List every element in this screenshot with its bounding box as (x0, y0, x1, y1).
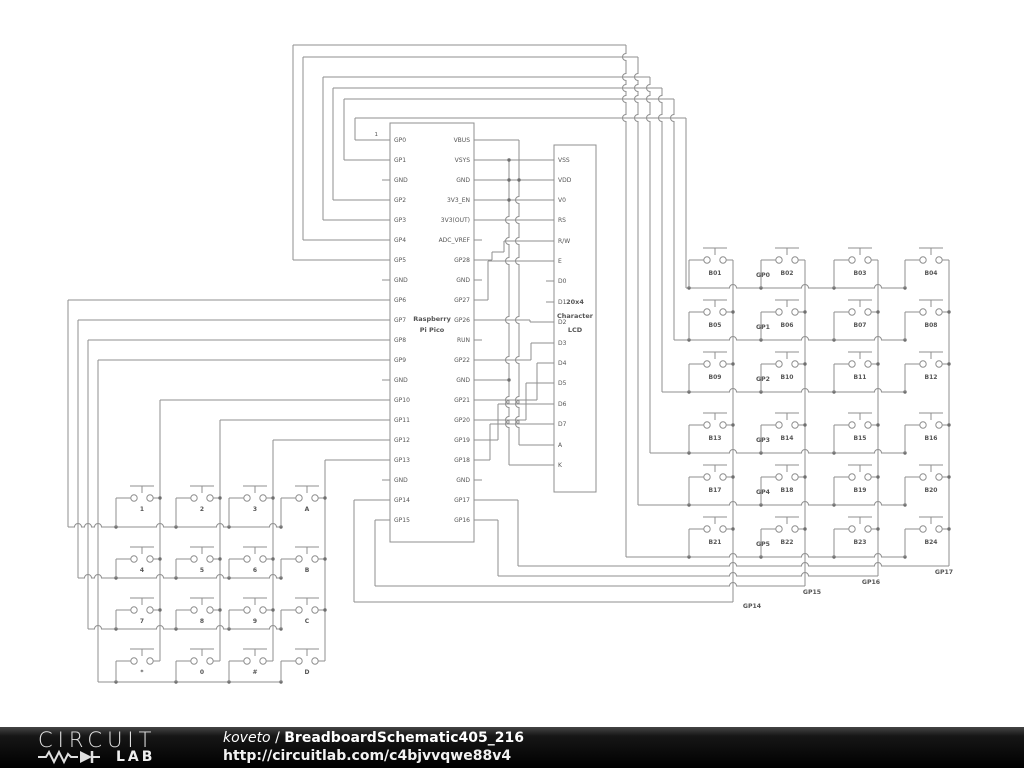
lcd-pin-label: D5 (558, 380, 567, 387)
button-contact (936, 257, 942, 263)
button-contact (936, 309, 942, 315)
junction-dot (507, 378, 510, 381)
resistor-diode-icon (38, 749, 114, 765)
lcd-name: LCD (568, 326, 583, 334)
button-contact (936, 361, 942, 367)
button-contact (704, 361, 710, 367)
button-contact (776, 361, 782, 367)
junction-dot (218, 608, 221, 611)
matrix-button-label: B01 (709, 270, 722, 277)
pico-left-pin-label: GP1 (394, 157, 406, 164)
matrix-row-label: GP1 (756, 324, 770, 331)
matrix-row-label: GP2 (756, 376, 770, 383)
schematic-credit-line: koveto / BreadboardSchematic405_216 (223, 730, 524, 748)
button-contact (936, 474, 942, 480)
matrix-button-label: B17 (709, 487, 722, 494)
keypad-button-label: 4 (140, 567, 144, 574)
keypad-button-label: C (305, 618, 310, 625)
button-contact (792, 474, 798, 480)
button-contact (312, 607, 318, 613)
keypad-button-label: A (305, 506, 310, 513)
matrix-bottom-label: GP14 (743, 603, 762, 610)
wire (635, 57, 639, 505)
button-contact (296, 556, 302, 562)
matrix-bottom-label: GP17 (935, 569, 953, 576)
button-contact (720, 361, 726, 367)
keypad-button-label: 3 (253, 506, 257, 513)
junction-dot (731, 310, 734, 313)
pico-right-pin-label: 3V3_EN (447, 197, 470, 204)
junction-dot (947, 475, 950, 478)
pico-right-pin-label: GP27 (454, 297, 470, 304)
button-contact (776, 474, 782, 480)
pico-right-pin-label: GP22 (454, 357, 470, 364)
junction-dot (158, 608, 161, 611)
credit-separator: / (271, 730, 285, 746)
button-contact (849, 526, 855, 532)
button-contact (244, 495, 250, 501)
button-contact (936, 422, 942, 428)
matrix-button-label: B02 (781, 270, 794, 277)
logo-text-circuit: CIRCUIT (38, 730, 223, 751)
button-contact (704, 309, 710, 315)
pico-left-pin-label: GND (394, 477, 408, 484)
footer-credits: koveto / BreadboardSchematic405_216 http… (223, 730, 524, 765)
pico-left-pin-label: GP14 (394, 497, 410, 504)
pico-right-pin-label: VBUS (454, 137, 471, 144)
junction-dot (803, 475, 806, 478)
matrix-button-label: B14 (781, 435, 794, 442)
matrix-row-label: GP5 (756, 541, 770, 548)
button-contact (312, 556, 318, 562)
button-contact (147, 495, 153, 501)
keypad-button-label: 9 (253, 618, 257, 625)
button-contact (704, 474, 710, 480)
wire (498, 573, 878, 576)
button-contact (865, 474, 871, 480)
junction-dot (731, 475, 734, 478)
matrix-row-label: GP0 (756, 272, 771, 279)
schematic-title: BreadboardSchematic405_216 (284, 730, 524, 746)
matrix-button-label: B21 (709, 539, 722, 546)
matrix-button-label: B23 (854, 539, 867, 546)
pico-left-pin-label: GND (394, 277, 408, 284)
keypad-button-label: 7 (140, 618, 144, 625)
junction-dot (218, 496, 221, 499)
button-contact (865, 526, 871, 532)
pico-left-pin-label: GP10 (394, 397, 410, 404)
button-contact (207, 607, 213, 613)
lcd-name: Character (557, 312, 594, 320)
matrix-button-label: B19 (854, 487, 867, 494)
button-contact (260, 556, 266, 562)
matrix-button-label: B24 (925, 539, 938, 546)
button-contact (849, 257, 855, 263)
button-contact (920, 526, 926, 532)
pico-left-pin-label: GP0 (394, 137, 406, 144)
button-contact (207, 556, 213, 562)
keypad-button-label: B (305, 567, 310, 574)
matrix-row-wire (638, 502, 905, 505)
lcd-pin-label: D3 (558, 340, 567, 347)
button-contact (849, 361, 855, 367)
junction-dot (876, 527, 879, 530)
matrix-button-label: B03 (854, 270, 867, 277)
junction-dot (517, 178, 520, 181)
pico-right-pin-label: GP17 (454, 497, 470, 504)
button-contact (147, 607, 153, 613)
lcd-pin-label: D4 (558, 360, 567, 367)
button-contact (720, 526, 726, 532)
pico-right-pin-label: GP26 (454, 317, 470, 324)
pico-left-pin-label: GP13 (394, 457, 410, 464)
pico-right-pin-label: GND (456, 177, 470, 184)
pico-left-pin-label: GP11 (394, 417, 410, 424)
matrix-button-label: B20 (925, 487, 938, 494)
matrix-button-label: B16 (925, 435, 938, 442)
wire (659, 88, 662, 392)
button-contact (260, 495, 266, 501)
button-contact (865, 361, 871, 367)
button-contact (920, 474, 926, 480)
pico-left-pin-label: GP4 (394, 237, 406, 244)
circuitlab-logo: CIRCUIT LAB (0, 730, 223, 765)
power-bus (516, 140, 520, 445)
pico-left-pin-label: GP12 (394, 437, 410, 444)
ground-bus (506, 160, 510, 465)
matrix-button-label: B09 (709, 374, 722, 381)
button-contact (296, 495, 302, 501)
author-name: koveto (223, 730, 271, 746)
button-contact (776, 257, 782, 263)
keypad-button-label: 0 (200, 669, 204, 676)
keypad-button-label: 1 (140, 506, 144, 513)
button-contact (244, 607, 250, 613)
lcd-pin-label: VDD (558, 177, 572, 184)
matrix-button-label: B13 (709, 435, 722, 442)
button-contact (312, 495, 318, 501)
schematic-url: http://circuitlab.com/c4bjvvqwe88v4 (223, 748, 524, 766)
matrix-button-label: B06 (781, 322, 794, 329)
keypad-button-label: # (252, 669, 257, 676)
junction-dot (876, 362, 879, 365)
button-contact (704, 257, 710, 263)
matrix-button-label: B05 (709, 322, 722, 329)
junction-dot (507, 158, 510, 161)
button-contact (720, 257, 726, 263)
button-contact (260, 607, 266, 613)
junction-dot (158, 496, 161, 499)
junction-dot (876, 423, 879, 426)
button-contact (865, 309, 871, 315)
pico-right-pin-label: GP21 (454, 397, 470, 404)
pico-left-pin-label: GP7 (394, 317, 406, 324)
button-contact (792, 422, 798, 428)
button-contact (191, 607, 197, 613)
matrix-row-label: GP4 (756, 489, 771, 496)
pico-pin1-marker: 1 (375, 132, 379, 138)
keypad-button-label: * (140, 669, 144, 676)
schematic-canvas: GP0GP1GNDGP2GP3GP4GP5GNDGP6GP7GP8GP9GNDG… (0, 0, 1024, 727)
pico-right-pin-label: GND (456, 477, 470, 484)
button-contact (792, 361, 798, 367)
matrix-button-label: B08 (925, 322, 938, 329)
junction-dot (876, 310, 879, 313)
matrix-bottom-label: GP15 (803, 589, 821, 596)
button-contact (704, 526, 710, 532)
button-contact (191, 495, 197, 501)
button-contact (920, 309, 926, 315)
lcd-pin-label: RS (558, 217, 566, 224)
button-contact (792, 526, 798, 532)
button-contact (296, 658, 302, 664)
pico-right-pin-label: RUN (457, 337, 470, 344)
button-contact (776, 422, 782, 428)
matrix-row-wire (662, 389, 905, 392)
keypad-button-label: 5 (200, 567, 204, 574)
pico-left-pin-label: GP15 (394, 517, 410, 524)
matrix-button-label: B11 (854, 374, 867, 381)
pico-left-pin-label: GND (394, 177, 408, 184)
matrix-row-wire (626, 554, 905, 557)
keypad-row-wire (78, 575, 281, 578)
wire (671, 99, 674, 340)
button-contact (920, 257, 926, 263)
wire (647, 77, 651, 453)
junction-dot (731, 527, 734, 530)
pico-right-pin-label: GP16 (454, 517, 470, 524)
keypad-button-label: 2 (200, 506, 204, 513)
matrix-button-label: B12 (925, 374, 938, 381)
button-contact (776, 309, 782, 315)
wire (623, 45, 627, 557)
keypad-button-label: 6 (253, 567, 257, 574)
pico-left-pin-label: GP9 (394, 357, 406, 364)
junction-dot (323, 557, 326, 560)
button-contact (131, 495, 137, 501)
button-contact (792, 257, 798, 263)
junction-dot (803, 362, 806, 365)
button-contact (920, 422, 926, 428)
button-contact (776, 526, 782, 532)
button-contact (147, 556, 153, 562)
button-contact (191, 658, 197, 664)
junction-dot (947, 423, 950, 426)
lcd-name: 20x4 (566, 298, 584, 306)
button-contact (849, 422, 855, 428)
pico-name: Raspberry (413, 315, 451, 323)
junction-dot (507, 178, 510, 181)
pico-right-pin-label: GP20 (454, 417, 470, 424)
footer-bar: CIRCUIT LAB koveto / BreadboardSchematic… (0, 727, 1024, 768)
wire (375, 583, 805, 587)
junction-dot (947, 362, 950, 365)
lcd-pin-label: E (558, 258, 562, 265)
pico-left-pin-label: GP2 (394, 197, 406, 204)
junction-dot (876, 475, 879, 478)
button-contact (296, 607, 302, 613)
matrix-button-label: B04 (925, 270, 938, 277)
pico-name: Pi Pico (420, 326, 445, 334)
button-contact (792, 309, 798, 315)
junction-dot (271, 496, 274, 499)
pico-right-pin-label: ADC_VREF (439, 237, 471, 244)
junction-dot (271, 608, 274, 611)
pico-right-pin-label: 3V3(OUT) (441, 217, 470, 224)
button-contact (207, 495, 213, 501)
button-contact (704, 422, 710, 428)
button-contact (131, 607, 137, 613)
lcd-pin-label: V0 (558, 197, 566, 204)
button-contact (865, 422, 871, 428)
logo-text-lab: LAB (116, 750, 155, 764)
button-contact (260, 658, 266, 664)
button-contact (131, 556, 137, 562)
pico-right-pin-label: GP28 (454, 257, 470, 264)
matrix-row-label: GP3 (756, 437, 770, 444)
button-contact (312, 658, 318, 664)
pico-right-pin-label: GP19 (454, 437, 470, 444)
matrix-button-label: B07 (854, 322, 867, 329)
button-contact (147, 658, 153, 664)
keypad-button-label: 8 (200, 618, 204, 625)
button-contact (849, 309, 855, 315)
pico-right-pin-label: GND (456, 277, 470, 284)
pico-left-pin-label: GP6 (394, 297, 406, 304)
button-contact (191, 556, 197, 562)
junction-dot (323, 496, 326, 499)
pico-left-pin-label: GND (394, 377, 408, 384)
button-contact (207, 658, 213, 664)
matrix-button-label: B18 (781, 487, 794, 494)
matrix-row-wire (686, 285, 905, 288)
junction-dot (323, 608, 326, 611)
junction-dot (803, 310, 806, 313)
matrix-button-label: B15 (854, 435, 867, 442)
button-contact (720, 309, 726, 315)
button-contact (131, 658, 137, 664)
junction-dot (158, 557, 161, 560)
lcd-pin-label: D2 (558, 319, 567, 326)
button-contact (936, 526, 942, 532)
pico-left-pin-label: GP5 (394, 257, 406, 264)
pico-right-pin-label: GND (456, 377, 470, 384)
pico-right-pin-label: GP18 (454, 457, 470, 464)
junction-dot (947, 310, 950, 313)
keypad-button-label: D (305, 669, 310, 676)
logo-bottom-row: LAB (38, 749, 223, 765)
button-contact (720, 422, 726, 428)
button-contact (920, 361, 926, 367)
schematic-page: GP0GP1GNDGP2GP3GP4GP5GNDGP6GP7GP8GP9GNDG… (0, 0, 1024, 768)
junction-dot (947, 527, 950, 530)
button-contact (849, 474, 855, 480)
matrix-bottom-label: GP16 (862, 579, 880, 586)
junction-dot (507, 198, 510, 201)
button-contact (244, 556, 250, 562)
pico-right-pin-label: VSYS (455, 157, 471, 164)
lcd-pin-label: D7 (558, 421, 567, 428)
lcd-pin-label: R/W (558, 238, 570, 245)
matrix-row-wire (674, 337, 905, 341)
junction-dot (803, 527, 806, 530)
pico-left-pin-label: GP8 (394, 337, 406, 344)
lcd-pin-label: D0 (558, 278, 567, 285)
junction-dot (731, 362, 734, 365)
junction-dot (218, 557, 221, 560)
pico-left-pin-label: GP3 (394, 217, 406, 224)
button-contact (865, 257, 871, 263)
matrix-button-label: B10 (781, 374, 794, 381)
lcd-pin-label: VSS (558, 157, 570, 164)
lcd-pin-label: D6 (558, 401, 567, 408)
button-contact (720, 474, 726, 480)
matrix-button-label: B22 (781, 539, 794, 546)
button-contact (244, 658, 250, 664)
junction-dot (271, 557, 274, 560)
junction-dot (731, 423, 734, 426)
junction-dot (803, 423, 806, 426)
